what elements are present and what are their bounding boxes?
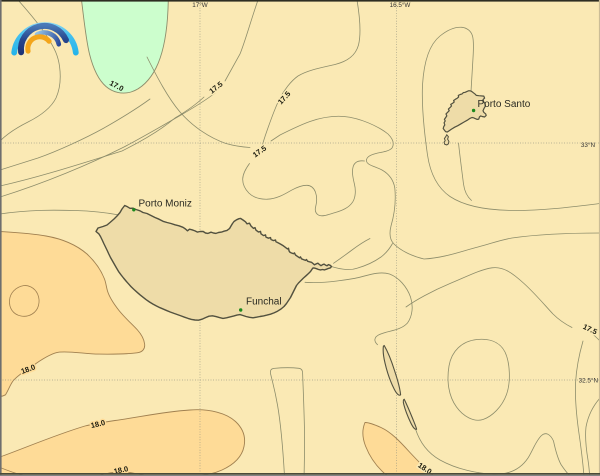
svg-text:Funchal: Funchal xyxy=(246,297,282,308)
svg-text:17°W: 17°W xyxy=(192,1,208,9)
svg-text:Porto Moniz: Porto Moniz xyxy=(139,199,192,210)
svg-text:Porto Santo: Porto Santo xyxy=(478,99,531,110)
svg-text:33°N: 33°N xyxy=(581,141,596,149)
svg-text:16.5°W: 16.5°W xyxy=(390,1,411,9)
svg-text:32.5°N: 32.5°N xyxy=(579,377,599,385)
